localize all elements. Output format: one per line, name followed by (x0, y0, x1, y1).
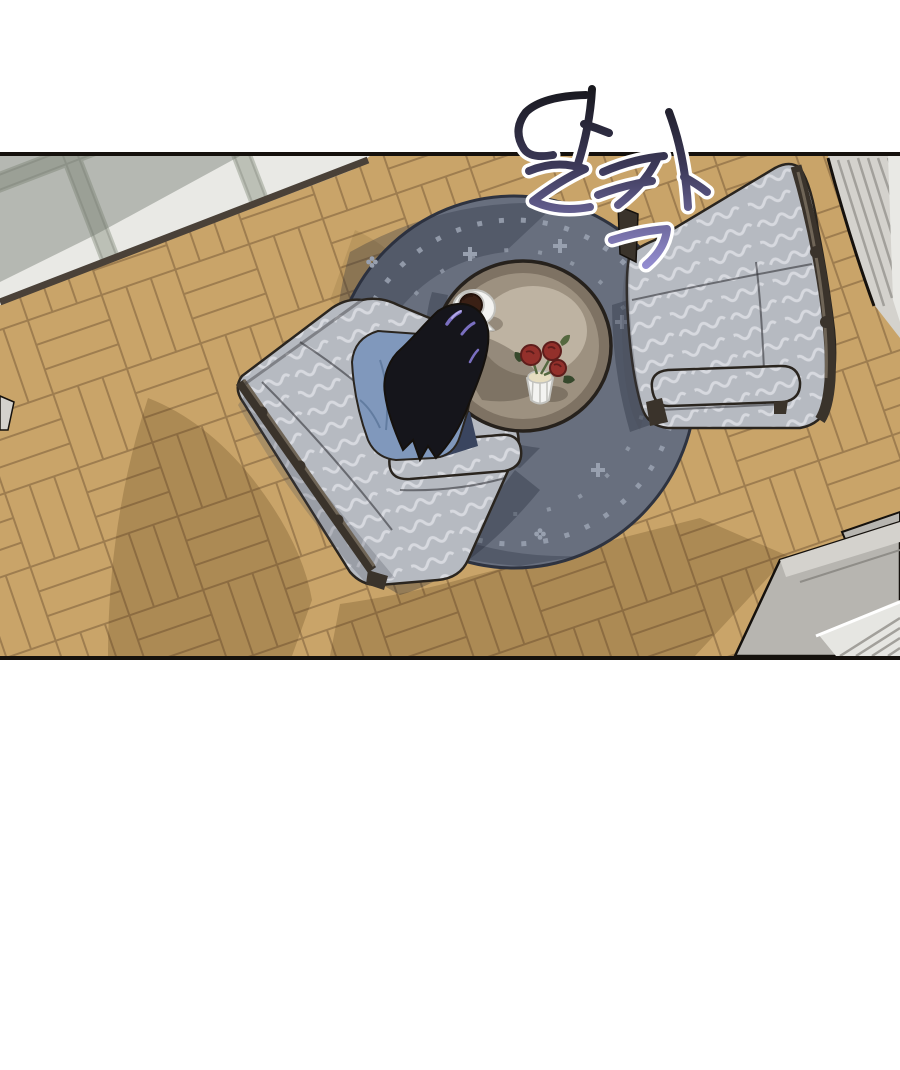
sfx-text-value: 달칵 (0, 0, 1, 1)
scene-illustration (0, 156, 900, 656)
webtoon-page: 달칵 (0, 0, 900, 1070)
comic-panel (0, 152, 900, 660)
